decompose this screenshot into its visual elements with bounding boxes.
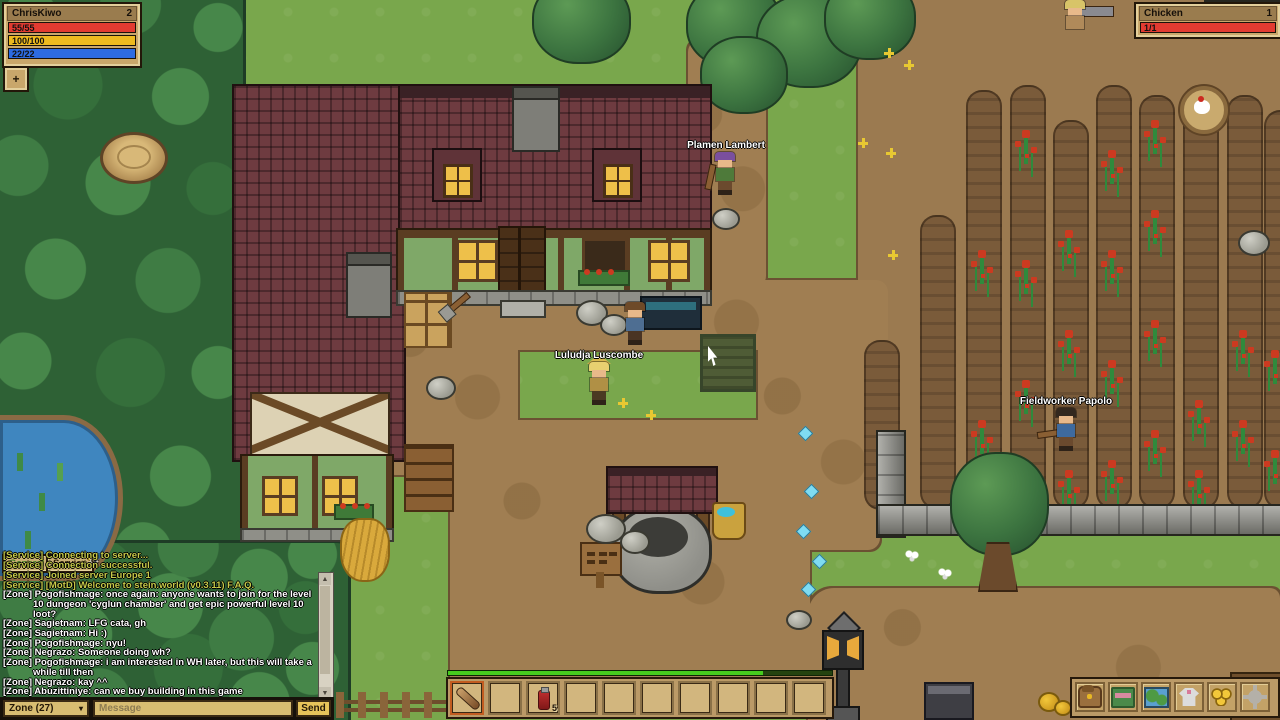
yellow-flower — [618, 398, 628, 408]
send-button[interactable]: Send — [296, 700, 331, 717]
white-flower — [905, 550, 919, 562]
yellow-flower — [884, 48, 894, 58]
player-mana-bar: 22/22 — [8, 48, 136, 59]
input-placeholder: Message — [99, 703, 141, 714]
wood-shelf — [404, 444, 454, 512]
lit-window — [648, 240, 690, 282]
game-viewport: Plamen Lambert Luludja Luscombe Fieldwor… — [0, 0, 1280, 720]
rock — [786, 610, 812, 630]
chat-channel-select[interactable]: Zone (27) ▾ — [3, 700, 89, 717]
crop-plant — [1142, 120, 1168, 154]
timber-post — [242, 456, 248, 532]
map-icon — [1144, 687, 1169, 708]
crop-plant — [1099, 150, 1125, 184]
armor-icon — [1179, 688, 1199, 706]
yellow-flower — [904, 60, 914, 70]
chat-message-input[interactable]: Message — [93, 700, 293, 717]
chicken-nest[interactable] — [1180, 86, 1228, 134]
yellow-flower — [646, 410, 656, 420]
timber-post — [558, 230, 564, 294]
yellow-flower — [858, 138, 868, 148]
wooden-club-icon — [455, 686, 482, 711]
crop-plant — [1056, 470, 1082, 504]
timber-post — [386, 456, 392, 532]
target-name: Chicken — [1144, 8, 1183, 19]
player-level: 2 — [126, 8, 132, 19]
npc-plamen-lambert[interactable] — [712, 152, 738, 196]
dormer-glass — [443, 164, 473, 198]
npc-nameplate: Fieldworker Papolo — [1020, 396, 1112, 407]
chat-scrollbar[interactable]: ▲ ▼ — [318, 572, 334, 700]
player-health-bar: 55/55 — [8, 22, 136, 33]
hotbar-slot-1[interactable] — [450, 681, 484, 715]
window-flowerbox — [578, 270, 630, 286]
hotbar-slot-2[interactable] — [488, 681, 522, 715]
chat-input-row: Zone (27) ▾ Message Send — [0, 697, 334, 720]
crop-row — [1183, 85, 1219, 509]
wooden-sign — [580, 542, 622, 576]
chimney — [346, 252, 392, 318]
dirt-path — [758, 330, 880, 550]
hotbar-slot-3[interactable]: 5 — [526, 681, 560, 715]
stone-stove — [924, 682, 974, 720]
dormer-window — [432, 148, 482, 202]
currency-button[interactable] — [1207, 682, 1237, 712]
player-header: ChrisKiwo 2 — [8, 7, 136, 20]
door-steps — [500, 300, 546, 318]
scroll-up-arrow[interactable]: ▲ — [319, 573, 331, 585]
target-header: Chicken 1 — [1140, 7, 1276, 20]
book-icon — [1111, 687, 1135, 708]
crop-row — [1096, 85, 1132, 509]
settings-button[interactable] — [1240, 682, 1270, 712]
xp-bar — [447, 670, 833, 676]
timber-post — [398, 230, 404, 294]
player-character[interactable] — [622, 302, 648, 346]
crop-row — [920, 215, 956, 509]
hotbar-slot-4[interactable] — [564, 681, 598, 715]
chimney — [512, 86, 560, 152]
stone-wall — [876, 504, 1280, 536]
npc-fieldworker-papolo[interactable] — [1053, 408, 1079, 452]
hotbar-slot-9[interactable] — [754, 681, 788, 715]
rock — [426, 376, 456, 400]
npc-nameplate: Luludja Luscombe — [555, 350, 643, 361]
scroll-thumb[interactable] — [320, 586, 330, 674]
rock — [1238, 230, 1270, 256]
crop-plant — [1186, 470, 1212, 504]
quest-log-button[interactable] — [1108, 682, 1138, 712]
crop-plant — [1099, 460, 1125, 494]
well-roof — [606, 466, 718, 514]
crop-plant — [969, 420, 995, 454]
crop-plant — [1230, 330, 1256, 364]
hotbar-slot-6[interactable] — [640, 681, 674, 715]
world-map-button[interactable] — [1141, 682, 1171, 712]
menu-bar — [1070, 677, 1280, 718]
target-health-bar: 1/1 — [1140, 22, 1276, 33]
coins-icon — [1211, 688, 1233, 706]
tilled-plot — [700, 334, 756, 392]
chat-log: [Service] Connecting to server... [Servi… — [3, 551, 315, 697]
gear-icon — [1245, 687, 1265, 707]
hotbar: 5 — [446, 677, 834, 719]
crop-plant — [1013, 260, 1039, 294]
crop-plant — [1142, 320, 1168, 354]
white-flower — [938, 568, 952, 580]
hotbar-slot-8[interactable] — [716, 681, 750, 715]
crop-plant — [1186, 400, 1212, 434]
crop-plant — [969, 250, 995, 284]
bag-icon — [1078, 686, 1102, 708]
inventory-button[interactable] — [1075, 682, 1105, 712]
yellow-flower — [888, 250, 898, 260]
crop-plant — [1142, 430, 1168, 464]
crop-plant — [1056, 230, 1082, 264]
crop-plant — [1262, 350, 1280, 384]
hay-pile — [340, 518, 390, 582]
player-unit-frame: ChrisKiwo 2 55/55 100/100 22/22 — [2, 2, 142, 68]
bench — [640, 296, 702, 330]
rock — [620, 530, 650, 554]
health-potion-icon — [538, 690, 550, 710]
tree-stump — [100, 132, 168, 184]
crop-plant — [1142, 210, 1168, 244]
chevron-down-icon: ▾ — [79, 704, 83, 713]
npc-fieldworker-top[interactable] — [1062, 0, 1088, 30]
chat-message: [Zone] Pogofishmage: i am interested in … — [3, 658, 315, 677]
hotbar-slot-10[interactable] — [792, 681, 826, 715]
dormer-window — [592, 148, 642, 202]
house-door — [498, 226, 546, 296]
item-count: 5 — [552, 703, 557, 713]
tree — [700, 36, 788, 114]
chat-message: [Zone] Pogofishmage: once again: anyone … — [3, 590, 315, 619]
crop-plant — [1013, 130, 1039, 164]
crop-plant — [1099, 250, 1125, 284]
chat-message: [Zone] Abuzittiniye: can we buy building… — [3, 687, 315, 697]
target-level: 1 — [1266, 8, 1272, 19]
timber-post — [312, 456, 318, 532]
timber-beam — [398, 230, 710, 238]
lit-window — [456, 240, 498, 282]
lit-window — [262, 476, 298, 516]
gable-timber — [250, 392, 390, 460]
character-button[interactable] — [1174, 682, 1204, 712]
lamppost-lantern — [822, 630, 864, 670]
npc-luludja-luscombe[interactable] — [586, 362, 612, 406]
crop-plant — [1099, 360, 1125, 394]
roof-ridge — [608, 468, 716, 476]
npc-nameplate: Plamen Lambert — [687, 140, 765, 151]
player-stamina-bar: 100/100 — [8, 35, 136, 46]
hotbar-slot-5[interactable] — [602, 681, 636, 715]
hotbar-slot-7[interactable] — [678, 681, 712, 715]
expand-button[interactable]: + — [3, 66, 29, 92]
crop-plant — [1056, 330, 1082, 364]
timber-post — [704, 230, 710, 294]
crop-plant — [1230, 420, 1256, 454]
rock — [712, 208, 740, 230]
crop-plant — [1262, 450, 1280, 484]
player-name: ChrisKiwo — [12, 8, 61, 19]
dormer-glass — [603, 164, 633, 198]
water-bucket — [712, 502, 746, 540]
round-tree — [950, 452, 1049, 556]
target-unit-frame: Chicken 1 1/1 — [1134, 2, 1280, 39]
yellow-flower — [886, 148, 896, 158]
xp-fill — [448, 671, 763, 675]
